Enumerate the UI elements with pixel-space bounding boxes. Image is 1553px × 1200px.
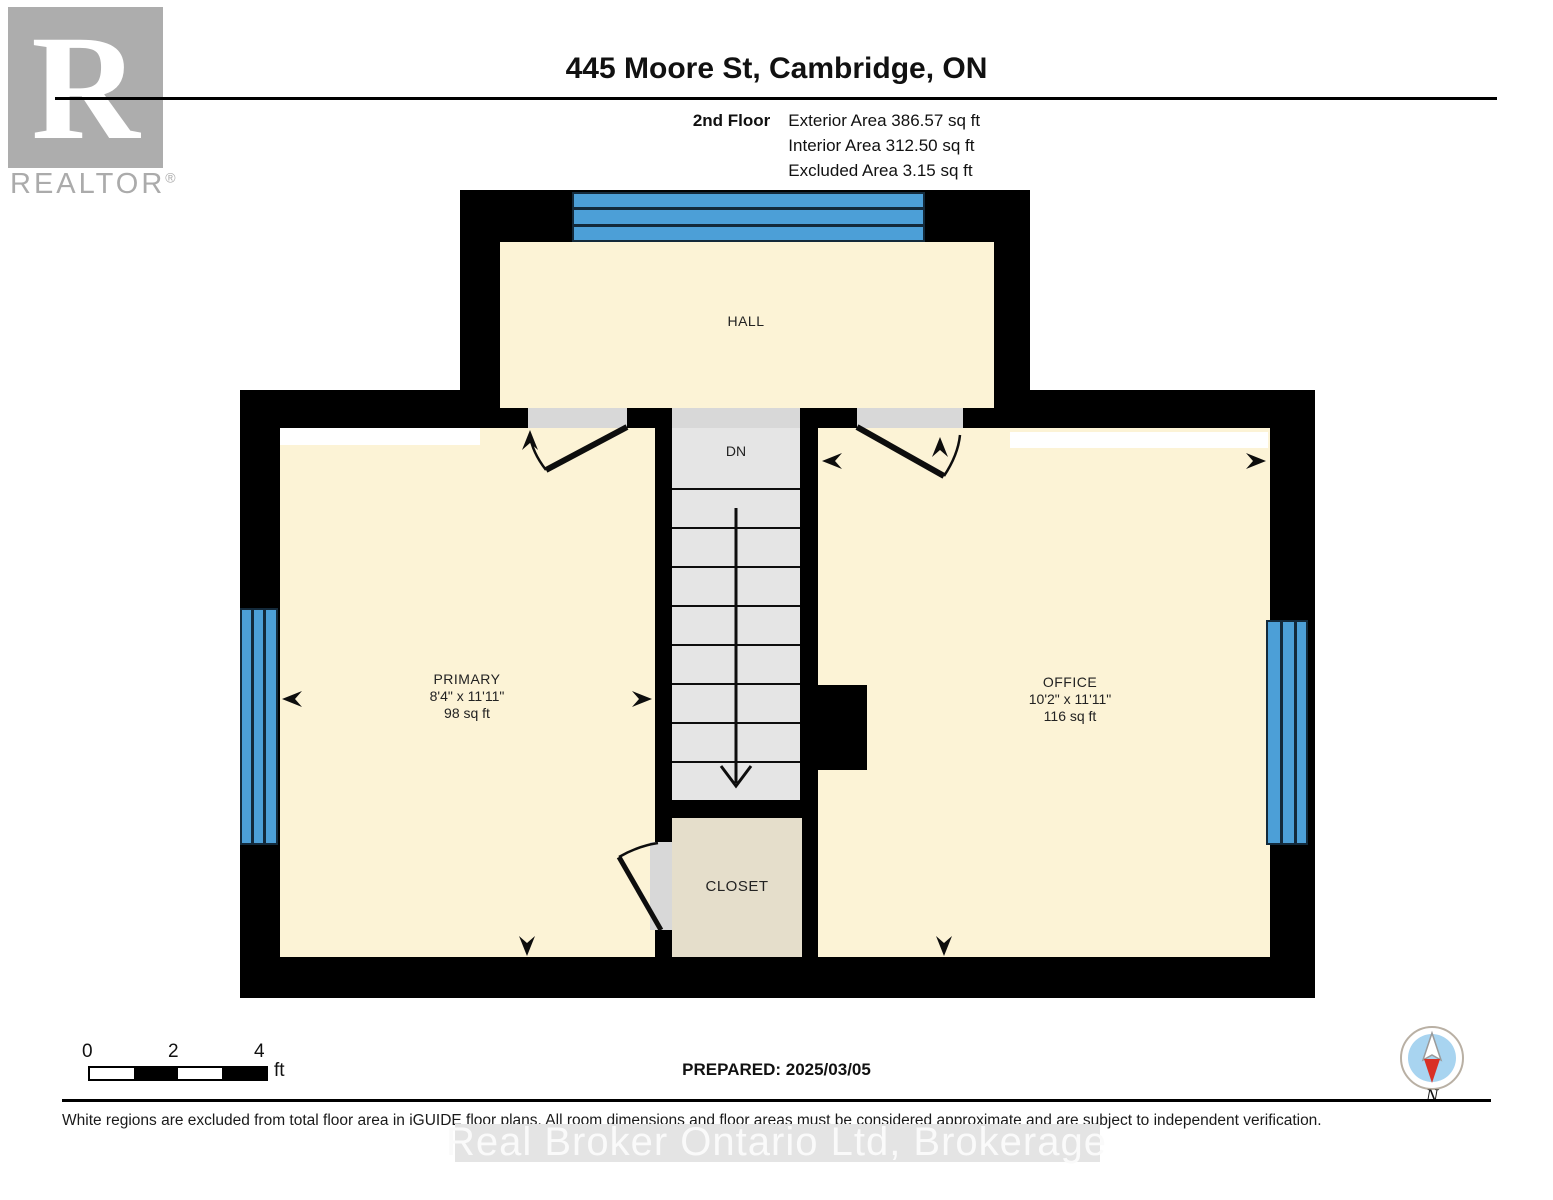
stairs-dn-label: DN — [666, 443, 806, 460]
closet-label: CLOSET — [637, 878, 837, 895]
watermark-text: Real Broker Ontario Ltd, Brokerage — [0, 1120, 1553, 1165]
floor-label: 2nd Floor — [693, 108, 770, 183]
prepared-date: PREPARED: 2025/03/05 — [0, 1060, 1553, 1080]
compass — [1397, 1022, 1467, 1092]
floorplan-page: R REALTOR® 445 Moore St, Cambridge, ON 2… — [0, 0, 1553, 1200]
window-pane-divider — [574, 224, 923, 227]
window-pane-divider — [1280, 622, 1283, 843]
room-dims: 8'4" x 11'11" — [367, 688, 567, 705]
room-name: OFFICE — [970, 674, 1170, 691]
window-right — [1266, 620, 1308, 845]
title-divider — [55, 97, 1497, 100]
stair-tread-line — [672, 722, 800, 724]
stairwell — [672, 428, 800, 800]
stair-tread-line — [672, 644, 800, 646]
window-left — [240, 608, 278, 845]
stair-tread-line — [672, 605, 800, 607]
compass-label: N — [1397, 1086, 1467, 1108]
interior-area: Interior Area 312.50 sq ft — [788, 133, 980, 158]
stair-tread-line — [672, 527, 800, 529]
door-opening-office — [857, 408, 963, 428]
stair-opening — [672, 408, 800, 428]
stair-tread-line — [672, 488, 800, 490]
stair-tread-line — [672, 761, 800, 763]
room-dims: 10'2" x 11'11" — [970, 691, 1170, 708]
door-opening-primary — [528, 408, 627, 428]
room-area: 116 sq ft — [970, 708, 1170, 725]
stair-tread-line — [672, 566, 800, 568]
hall-label: HALL — [646, 313, 846, 330]
stair-tread-line — [672, 683, 800, 685]
chimney-block — [808, 685, 867, 770]
primary-label: PRIMARY 8'4" x 11'11" 98 sq ft — [367, 671, 567, 722]
room-area: 98 sq ft — [367, 705, 567, 722]
page-title: 445 Moore St, Cambridge, ON — [0, 52, 1553, 86]
window-pane-divider — [251, 610, 254, 843]
room-name: CLOSET — [705, 878, 768, 895]
office-label: OFFICE 10'2" x 11'11" 116 sq ft — [970, 674, 1170, 725]
scale-tick-labels: 0 2 4 — [80, 1041, 280, 1059]
window-pane-divider — [263, 610, 266, 843]
room-name: PRIMARY — [367, 671, 567, 688]
window-top — [572, 192, 925, 242]
excluded-area: Excluded Area 3.15 sq ft — [788, 158, 980, 183]
room-name: HALL — [727, 313, 764, 329]
floor-stats: 2nd Floor Exterior Area 386.57 sq ft Int… — [0, 108, 1553, 183]
window-pane-divider — [1294, 622, 1297, 843]
window-pane-divider — [574, 207, 923, 210]
excluded-region-primary — [280, 428, 480, 445]
excluded-region-office — [1010, 432, 1268, 448]
dn-label: DN — [726, 443, 746, 459]
footer-divider — [62, 1099, 1491, 1102]
exterior-area: Exterior Area 386.57 sq ft — [788, 108, 980, 133]
